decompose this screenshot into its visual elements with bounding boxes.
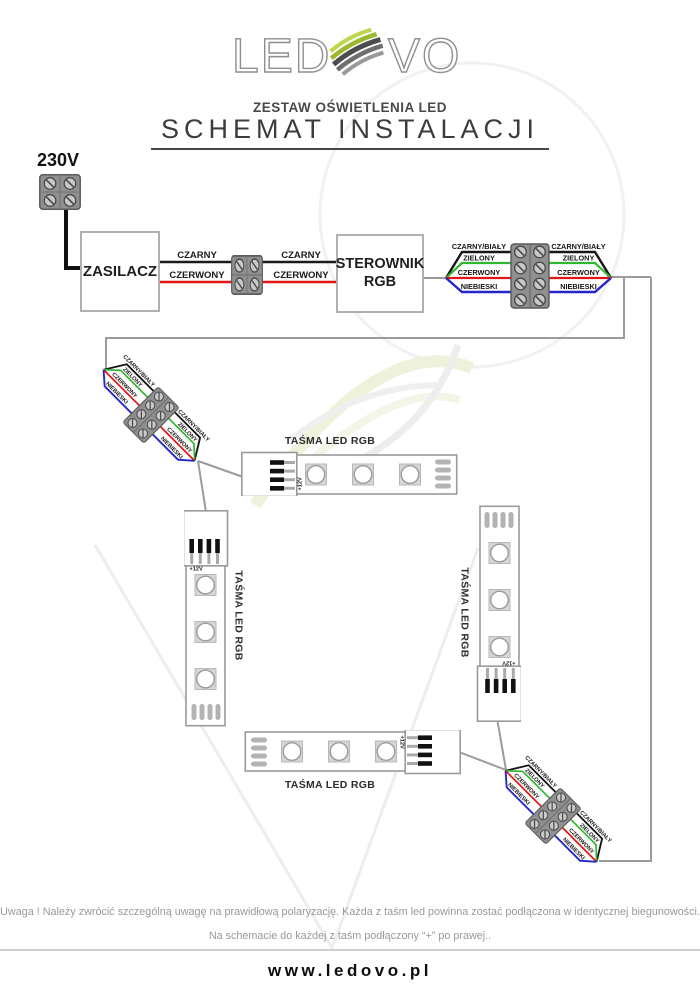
note-line-2: Na schemacie do każdej z taśm podłączony… (0, 930, 700, 942)
logo-globe-icon (326, 26, 386, 76)
terminal-block-inline (231, 255, 263, 295)
wire-label-czerwony-1: CZERWONY (159, 270, 235, 281)
strip-plus-label: +12V (298, 477, 304, 490)
footer-divider (0, 949, 700, 951)
footer-url: www.ledovo.pl (0, 961, 700, 981)
rgb-label-green-right: ZIELONY (563, 254, 595, 263)
led-strip-left: +12V (184, 510, 232, 730)
wire-label-czarny-2: CZARNY (263, 250, 339, 261)
mains-wire (66, 208, 81, 268)
led-strip-right: +12V (473, 502, 521, 722)
logo-text-vo: VO (388, 30, 461, 83)
controller-box: STEROWNIK RGB (336, 234, 424, 313)
rgb-connector-left: CZARNY/BIAŁY ZIELONY CZERWONY NIEBIESKI … (84, 348, 217, 481)
ledovo-logo: LED VO (230, 20, 480, 90)
rgb-label-black-left: CZARNY/BIAŁY (452, 242, 506, 251)
mains-voltage-label: 230V (37, 150, 79, 171)
rgb-label-blue-left: NIEBIESKI (461, 282, 498, 291)
terminal-block-230v (39, 174, 81, 210)
strip-plus-label: +12V (190, 567, 203, 573)
strip-label-top: TAŚMA LED RGB (255, 435, 405, 447)
page: LED VO ZESTAW OŚWIETLENIA LED SCHEMAT IN… (0, 0, 700, 1000)
strip-label-left: TAŚMA LED RGB (232, 561, 245, 671)
page-title: SCHEMAT INSTALACJI (151, 114, 549, 150)
strip-plus-label: +12V (502, 660, 515, 666)
note-line-1: Uwaga ! Należy zwrócić szczególną uwagę … (0, 906, 700, 918)
rgb-label-green-left: ZIELONY (463, 254, 495, 263)
wire-label-czarny-1: CZARNY (159, 250, 235, 261)
rgb-label-red-right: CZERWONY (557, 268, 600, 277)
controller-label-line2: RGB (364, 274, 396, 291)
subtitle: ZESTAW OŚWIETLENIA LED (0, 100, 700, 115)
title-wrap: SCHEMAT INSTALACJI (0, 114, 700, 150)
rgb-label-red-left: CZERWONY (458, 268, 501, 277)
rgb-label-blue-right: NIEBIESKI (560, 282, 597, 291)
controller-label-line1: STEROWNIK (336, 256, 425, 273)
strip-label-bottom: TAŚMA LED RGB (255, 779, 405, 791)
led-strip-top: +12V (241, 448, 461, 496)
strip-plus-label: +12V (399, 736, 405, 749)
rgb-connector-bottom-right: CZARNY/BIAŁY ZIELONY CZERWONY NIEBIESKI … (486, 749, 619, 882)
strip-label-right: TAŚMA LED RGB (458, 558, 471, 668)
rgb-label-black-right: CZARNY/BIAŁY (551, 242, 605, 251)
wire-label-czerwony-2: CZERWONY (263, 270, 339, 281)
power-supply-label: ZASILACZ (83, 263, 157, 280)
power-supply-box: ZASILACZ (80, 231, 160, 312)
led-strip-bottom: +12V (241, 730, 461, 778)
rgb-connector-top: CZARNY/BIAŁY ZIELONY CZERWONY NIEBIESKI … (445, 240, 615, 312)
logo-text-led: LED (232, 30, 331, 83)
